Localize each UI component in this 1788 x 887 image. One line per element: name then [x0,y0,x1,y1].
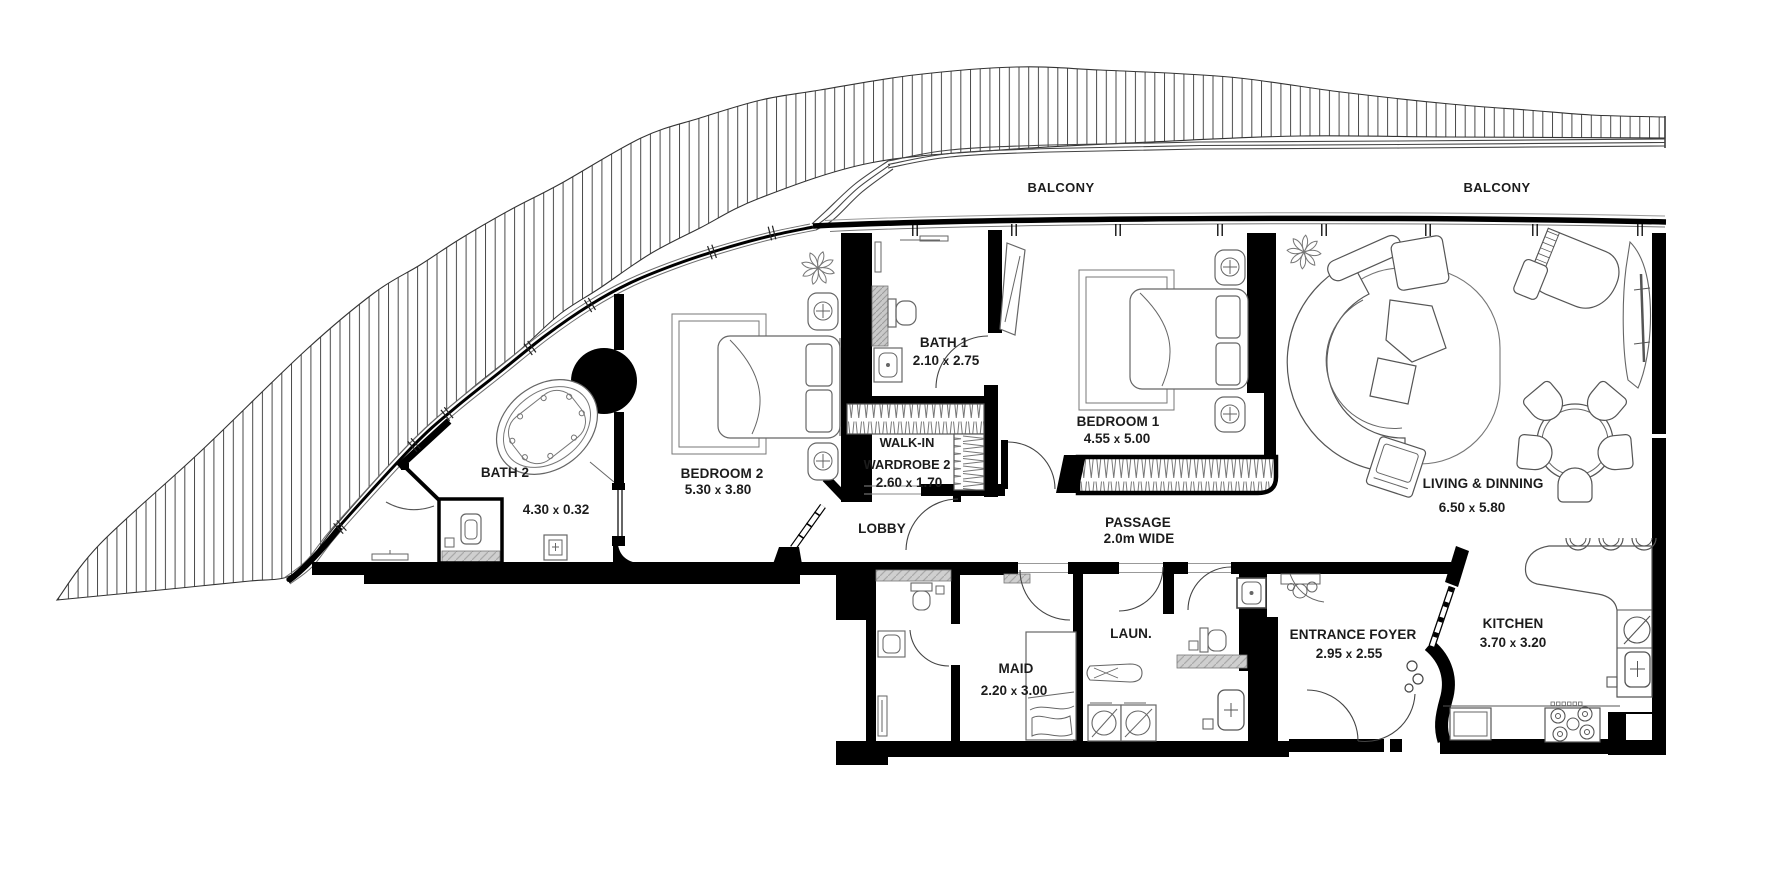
svg-text:4.30 x 0.32: 4.30 x 0.32 [523,502,589,517]
svg-text:2.10 x 2.75: 2.10 x 2.75 [913,353,980,368]
svg-text:LOBBY: LOBBY [858,521,906,536]
svg-text:6.50 x 5.80: 6.50 x 5.80 [1439,500,1505,515]
svg-text:BATH 2: BATH 2 [481,465,529,480]
svg-text:ENTRANCE FOYER: ENTRANCE FOYER [1290,627,1417,642]
svg-text:BEDROOM 2: BEDROOM 2 [681,466,764,481]
svg-text:5.30 x 3.80: 5.30 x 3.80 [685,482,751,497]
svg-text:BALCONY: BALCONY [1027,180,1094,195]
svg-text:MAID: MAID [999,661,1034,676]
svg-text:BALCONY: BALCONY [1463,180,1530,195]
svg-text:BATH 1: BATH 1 [920,335,969,350]
svg-text:KITCHEN: KITCHEN [1483,616,1544,631]
svg-text:BEDROOM 1: BEDROOM 1 [1077,414,1160,429]
svg-text:2.20 x 3.00: 2.20 x 3.00 [981,683,1047,698]
svg-text:WARDROBE 2: WARDROBE 2 [864,457,951,472]
svg-text:WALK-IN: WALK-IN [880,435,935,450]
svg-text:4.55 x 5.00: 4.55 x 5.00 [1084,431,1150,446]
svg-text:LAUN.: LAUN. [1110,626,1152,641]
svg-text:3.70 x 3.20: 3.70 x 3.20 [1480,635,1546,650]
svg-text:2.0m WIDE: 2.0m WIDE [1104,531,1175,546]
svg-text:LIVING & DINNING: LIVING & DINNING [1423,476,1544,491]
svg-text:PASSAGE: PASSAGE [1105,515,1171,530]
svg-text:2.60 x 1.70: 2.60 x 1.70 [876,475,942,490]
svg-text:2.95 x 2.55: 2.95 x 2.55 [1316,646,1383,661]
